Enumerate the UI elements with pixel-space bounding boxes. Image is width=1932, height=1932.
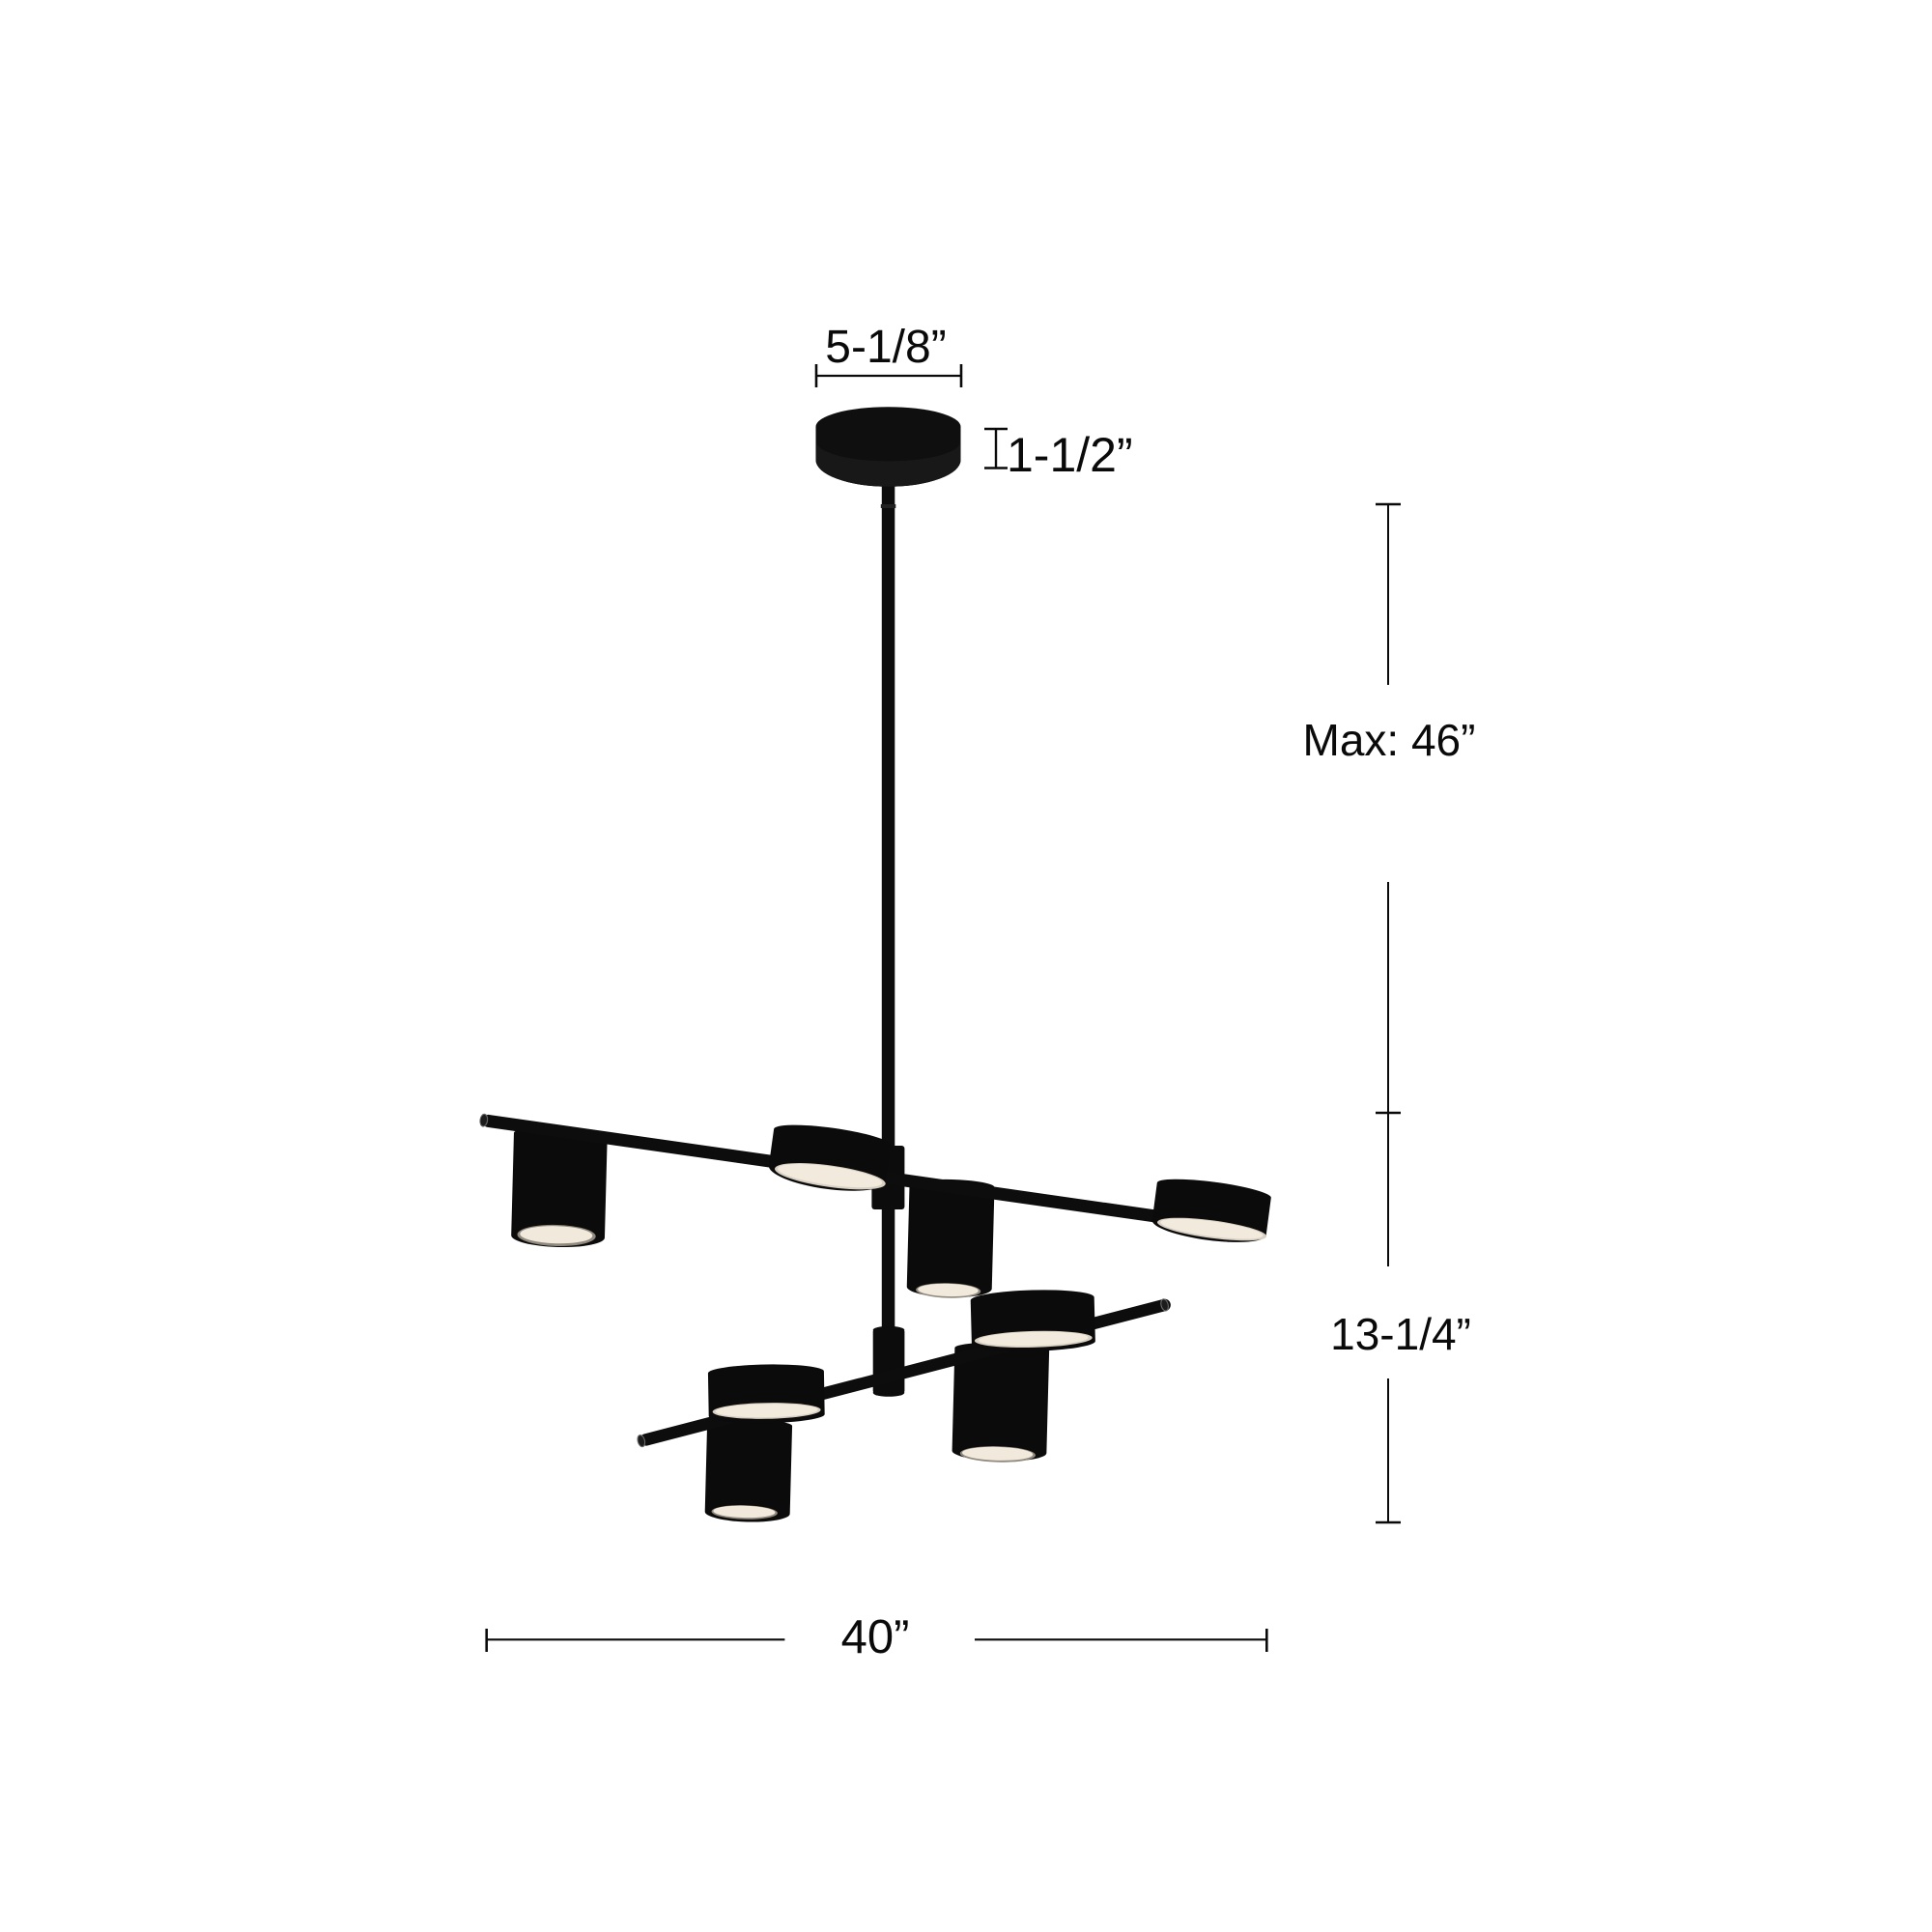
svg-text:40”: 40” xyxy=(841,1611,910,1663)
svg-text:1-1/2”: 1-1/2” xyxy=(1007,428,1133,482)
svg-text:13-1/4”: 13-1/4” xyxy=(1330,1309,1471,1359)
svg-text:5-1/8”: 5-1/8” xyxy=(825,322,946,373)
svg-text:Max: 46”: Max: 46” xyxy=(1303,715,1476,765)
